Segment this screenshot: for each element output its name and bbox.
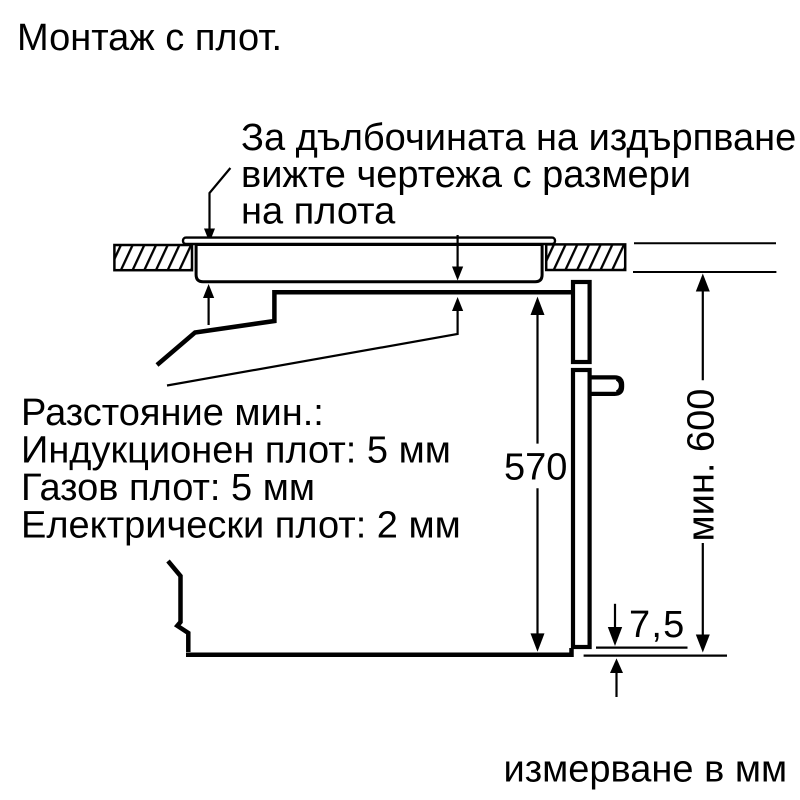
svg-text:измерване в мм: измерване в мм: [504, 749, 788, 791]
svg-text:на плота: на плота: [241, 191, 396, 233]
svg-text:Монтаж с плот.: Монтаж с плот.: [17, 17, 282, 59]
svg-text:За дълбочината на издърпване: За дълбочината на издърпване: [241, 117, 796, 159]
svg-text:Електрически плот: 2 мм: Електрически плот: 2 мм: [21, 505, 461, 547]
svg-text:570: 570: [504, 447, 567, 489]
svg-text:Разстояние мин.:: Разстояние мин.:: [21, 392, 324, 434]
svg-text:Индукционен плот: 5 мм: Индукционен плот: 5 мм: [21, 430, 451, 472]
svg-text:7,5: 7,5: [629, 604, 685, 646]
svg-text:мин. 600: мин. 600: [680, 389, 722, 542]
svg-text:Газов плот: 5 мм: Газов плот: 5 мм: [21, 467, 315, 509]
